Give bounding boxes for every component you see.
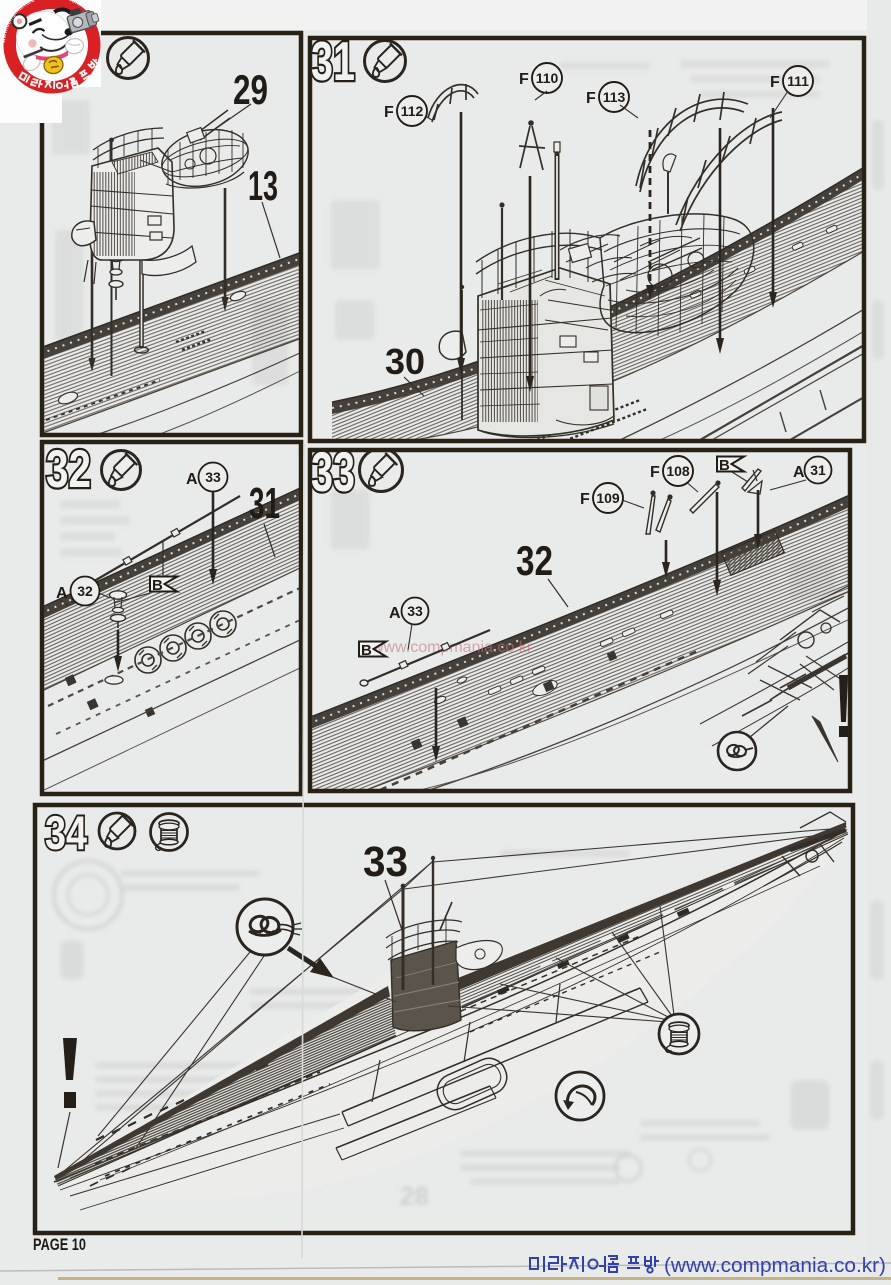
svg-text:A: A — [56, 585, 68, 602]
svg-text:A: A — [389, 605, 401, 622]
svg-text:110: 110 — [536, 70, 559, 86]
svg-text:F: F — [650, 464, 660, 481]
svg-text:F: F — [586, 90, 596, 107]
svg-text:B: B — [361, 642, 372, 659]
svg-text:F: F — [580, 491, 590, 508]
svg-text:112: 112 — [401, 103, 424, 119]
svg-text:F: F — [770, 74, 780, 91]
svg-text:34: 34 — [45, 806, 87, 859]
svg-text:B: B — [719, 457, 730, 474]
svg-text:www.compmania.co.kr: www.compmania.co.kr — [371, 639, 533, 656]
svg-text:33: 33 — [407, 603, 423, 619]
svg-text:PAGE 10: PAGE 10 — [33, 1235, 86, 1254]
svg-text:(www.compmania.co.kr): (www.compmania.co.kr) — [664, 1255, 886, 1277]
svg-text:29: 29 — [233, 66, 268, 113]
svg-text:33: 33 — [205, 469, 221, 485]
svg-text:30: 30 — [385, 341, 425, 382]
svg-text:28: 28 — [400, 1181, 429, 1211]
svg-text:109: 109 — [596, 490, 620, 506]
svg-text:32: 32 — [77, 583, 93, 599]
svg-text:108: 108 — [666, 463, 690, 479]
svg-text:A: A — [793, 464, 805, 481]
svg-text:32: 32 — [46, 440, 91, 499]
svg-text:13: 13 — [248, 162, 278, 209]
svg-text:F: F — [519, 71, 529, 88]
svg-text:A: A — [186, 471, 198, 488]
svg-text:32: 32 — [516, 537, 553, 584]
svg-text:111: 111 — [787, 73, 809, 89]
svg-text:31: 31 — [810, 462, 826, 478]
svg-text:31: 31 — [249, 479, 280, 528]
svg-text:B: B — [152, 577, 163, 594]
svg-text:F: F — [384, 104, 394, 121]
svg-text:33: 33 — [363, 838, 408, 886]
svg-text:113: 113 — [603, 89, 626, 105]
